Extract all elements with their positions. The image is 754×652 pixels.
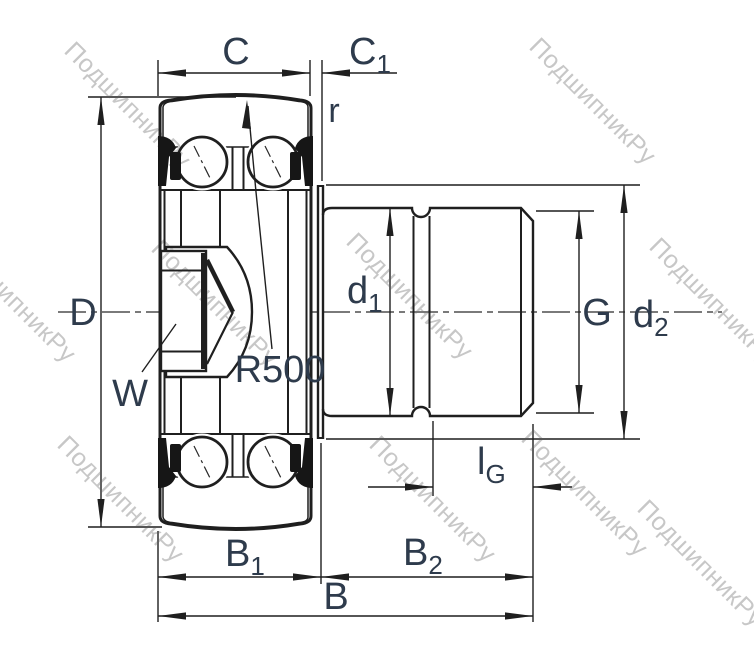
label-r: r [328, 92, 339, 130]
label-C1: C1 [349, 31, 391, 79]
arrowhead [386, 388, 393, 416]
arrowhead [293, 573, 321, 580]
arrowhead [158, 573, 186, 580]
label-D: D [69, 292, 96, 334]
seal-lip [290, 152, 301, 180]
label-W: W [112, 373, 148, 415]
bearing-technical-drawing: C C1 r D d1 G d2 [0, 0, 754, 652]
seal-lip [170, 444, 181, 472]
label-lG: lG [477, 441, 506, 489]
arrowhead [575, 211, 582, 239]
arrowhead [505, 573, 533, 580]
arrowhead [322, 69, 350, 76]
label-B1: B1 [225, 533, 265, 581]
arrowhead [97, 499, 104, 527]
seal-lip [290, 444, 301, 472]
dimension-B: B [158, 576, 533, 620]
arrowhead [386, 208, 393, 236]
arrowhead [575, 385, 582, 413]
arrowhead [505, 612, 533, 619]
arrowhead [620, 185, 627, 213]
label-B: B [323, 576, 348, 618]
label-d2: d2 [633, 294, 669, 342]
drawing-canvas: C C1 r D d1 G d2 [0, 0, 754, 652]
arrowhead [158, 612, 186, 619]
arrowhead [97, 97, 104, 125]
label-G: G [582, 292, 612, 334]
arrowhead [620, 411, 627, 439]
label-B2: B2 [403, 532, 443, 580]
watermark-text: ПодшипникРу [632, 494, 754, 632]
arrowhead [158, 69, 186, 76]
watermark-text: ПодшипникРу [516, 424, 654, 562]
arrowhead [282, 69, 310, 76]
watermark-text: ПодшипникРу [524, 32, 662, 170]
label-C: C [222, 31, 249, 73]
watermark-text: ПодшипникРу [644, 232, 754, 370]
